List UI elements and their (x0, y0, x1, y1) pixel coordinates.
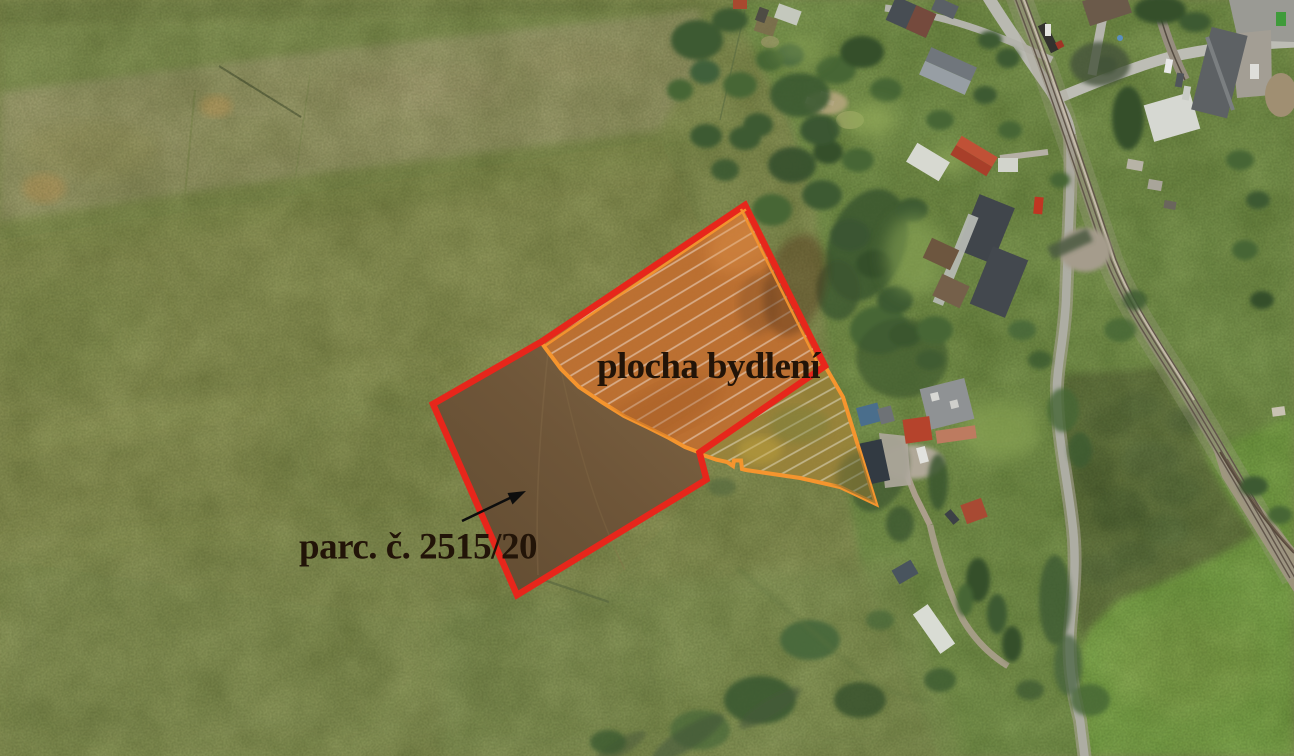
svg-text:parc. č. 2515/20: parc. č. 2515/20 (299, 527, 537, 568)
svg-text:plocha bydlení: plocha bydlení (597, 346, 821, 387)
